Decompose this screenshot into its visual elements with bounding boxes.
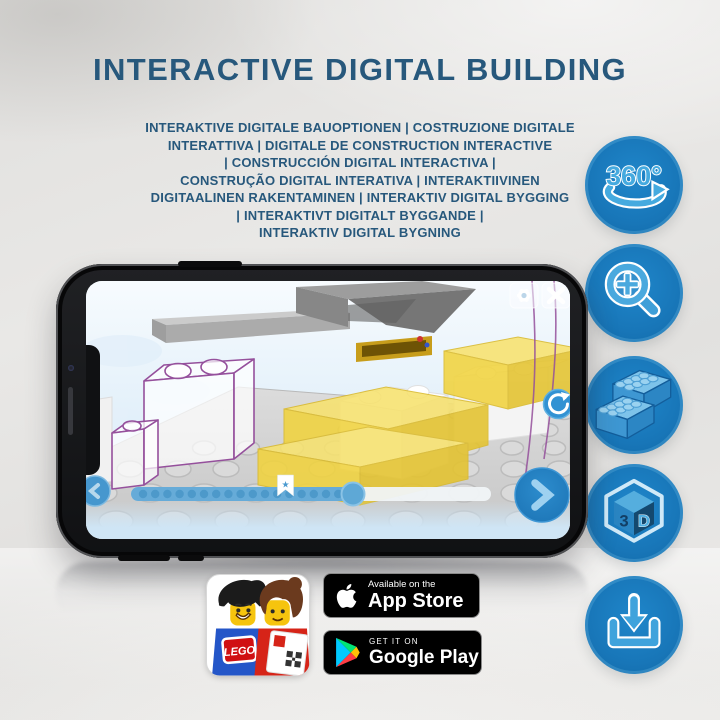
feature-360-rotation: 360° xyxy=(585,136,683,234)
cube-letter: D xyxy=(638,511,650,530)
front-camera xyxy=(68,365,74,371)
phone-notch xyxy=(86,345,100,475)
phone-screen: ★ xyxy=(86,281,570,539)
phone-reflection xyxy=(56,562,588,624)
feature-download xyxy=(585,576,683,674)
app-store-tagline: Available on the xyxy=(368,579,464,590)
close-button[interactable] xyxy=(542,283,570,308)
subtitle-line: CONSTRUÇÃO DIGITAL INTERATIVA | INTERAKT… xyxy=(60,172,660,190)
progress-bar[interactable] xyxy=(131,487,491,501)
progress-dots xyxy=(139,490,343,498)
previous-step-button[interactable] xyxy=(86,476,110,506)
subtitle-line: INTERATTIVA | DIGITALE DE CONSTRUCTION I… xyxy=(60,137,660,155)
feature-zoom xyxy=(585,244,683,342)
phone-volume-button xyxy=(178,555,204,561)
foreground-haze xyxy=(86,501,570,539)
app-store-name: App Store xyxy=(368,590,464,612)
app-store-badge[interactable]: Available on the App Store xyxy=(323,573,480,618)
lego-logo-badge: LEGO xyxy=(222,636,256,663)
phone-power-button xyxy=(178,261,242,267)
svg-text:★: ★ xyxy=(281,480,289,490)
app-store-text: Available on the App Store xyxy=(368,579,464,612)
feature-bricks xyxy=(585,356,683,454)
subtitle-line: | CONSTRUCCIÓN DIGITAL INTERACTIVA | xyxy=(60,154,660,172)
bricks-icon xyxy=(594,365,674,445)
settings-button[interactable] xyxy=(510,283,538,308)
lego-app-icon[interactable]: LEGO xyxy=(206,574,310,676)
rotate-view-button[interactable] xyxy=(544,390,571,419)
subtitle-line: INTERAKTIV DIGITAL BYGNING xyxy=(60,224,660,242)
subtitle-line: INTERAKTIVE DIGITALE BAUOPTIONEN | COSTR… xyxy=(60,119,660,137)
next-step-button[interactable] xyxy=(515,468,569,522)
download-icon xyxy=(595,586,673,664)
360-rotation-icon: 360° xyxy=(595,146,673,224)
lego-app-artwork: LEGO xyxy=(206,574,310,676)
subtitle-line: | INTERAKTIVT DIGITALT BYGGANDE | xyxy=(60,207,660,225)
zoom-in-icon xyxy=(595,254,673,332)
qr-card xyxy=(266,631,308,676)
progress-slider-handle[interactable] xyxy=(342,483,365,506)
google-play-icon xyxy=(334,637,361,668)
phone-volume-button xyxy=(118,555,170,561)
page: INTERACTIVE DIGITAL BUILDING INTERAKTIVE… xyxy=(0,0,720,720)
360-label: 360° xyxy=(606,160,662,191)
apple-icon xyxy=(335,581,359,610)
google-play-badge[interactable]: GET IT ON Google Play xyxy=(323,630,482,675)
3d-cube-icon: 3 D xyxy=(594,473,674,553)
subtitle-line: DIGITAALINEN RAKENTAMINEN | INTERAKTIV D… xyxy=(60,189,660,207)
earpiece-speaker xyxy=(68,387,73,435)
blue-piece xyxy=(425,343,430,348)
phone-mockup: ★ xyxy=(56,264,588,558)
red-piece xyxy=(417,336,423,342)
google-play-name: Google Play xyxy=(369,647,479,668)
page-title: INTERACTIVE DIGITAL BUILDING xyxy=(0,52,720,88)
google-play-tagline: GET IT ON xyxy=(369,637,479,647)
cube-digit: 3 xyxy=(619,511,628,530)
google-play-text: GET IT ON Google Play xyxy=(369,637,479,668)
subtitle: INTERAKTIVE DIGITALE BAUOPTIONEN | COSTR… xyxy=(60,119,660,242)
building-scene: ★ xyxy=(86,281,570,539)
feature-3d-view: 3 D xyxy=(585,464,683,562)
